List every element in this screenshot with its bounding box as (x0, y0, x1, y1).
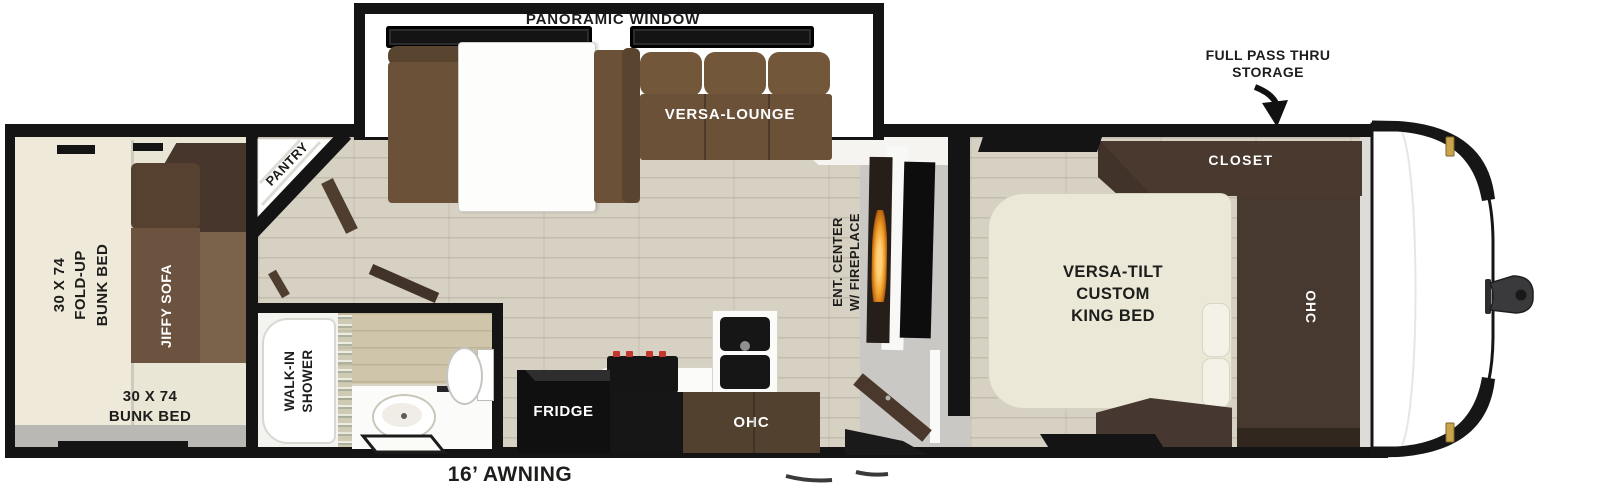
stove-knob-4 (659, 351, 666, 357)
toilet-bowl (446, 347, 483, 405)
jiffy-sofa-text: JIFFY SOFA (158, 264, 174, 348)
kitchen-ohc-cabinet: OHC (683, 392, 820, 453)
jiffy-sofa-label: JIFFY SOFA (157, 241, 175, 371)
king-bed-line-3: KING BED (1013, 306, 1213, 328)
hitch-mount (1485, 279, 1491, 314)
bunk-bed-line-2: BUNK BED (60, 407, 240, 427)
king-bed-line-2: CUSTOM (1013, 284, 1213, 306)
clearance-light-top-icon (1446, 137, 1454, 156)
storage-arrow-icon (1255, 87, 1277, 106)
bunk-bed-line-1: 30 X 74 (60, 387, 240, 407)
lounge-seam-2 (768, 94, 770, 160)
versa-lounge-label: VERSA-LOUNGE (630, 105, 830, 125)
shower-glass-door (338, 315, 352, 446)
bunk-bed-label: 30 X 74 BUNK BED (60, 387, 240, 428)
bedroom-doorway-floor (948, 416, 970, 447)
kitchen-ohc-label: OHC (733, 414, 769, 431)
kitchen-sink-bowl-bottom (720, 355, 770, 389)
walk-in-shower-label: WALK-IN SHOWER (281, 321, 317, 441)
walk-in-shower-line-2: SHOWER (299, 321, 317, 441)
versa-lounge-back-cushion-2 (704, 52, 766, 96)
storage-arrowhead-icon (1262, 100, 1288, 127)
bedroom-ohc-text: OHC (1303, 290, 1319, 324)
awning-label: 16’ AWNING (420, 461, 600, 488)
stove-knob-3 (646, 351, 653, 357)
bunk-window-top-right (133, 143, 163, 151)
under-counter-cabinet (598, 392, 683, 453)
exterior-step-marks (786, 472, 888, 481)
versa-lounge-back-cushion-1 (640, 52, 702, 96)
sink-basin (372, 394, 436, 440)
lounge-seam-1 (704, 94, 706, 160)
ent-center-line-1: ENT. CENTER (830, 187, 847, 337)
fold-up-bunk-line-1: 30 X 74 (49, 165, 70, 405)
hitch-coupler-icon (1490, 276, 1533, 313)
tv (900, 162, 936, 339)
ent-center-line-2: W/ FIREPLACE (847, 187, 864, 337)
entry-door-frame (930, 350, 940, 443)
fridge: FRIDGE (517, 370, 610, 453)
ohc-seam (753, 392, 755, 453)
jiffy-sofa-armrest (131, 163, 200, 229)
closet-label: CLOSET (1196, 151, 1286, 169)
closet-text: CLOSET (1208, 152, 1273, 168)
fold-up-bunk-label: 30 X 74 FOLD-UP BUNK BED (49, 165, 115, 405)
fridge-label: FRIDGE (533, 403, 593, 420)
panoramic-window-text: PANORAMIC WINDOW (526, 11, 700, 28)
fold-up-bunk-line-2: FOLD-UP (70, 165, 91, 405)
hitch-ball-socket-icon (1516, 290, 1527, 301)
pass-thru-line-1: FULL PASS THRU (1178, 47, 1358, 64)
front-cap-bottom-trim (1372, 377, 1495, 458)
bunk-window-bottom (58, 441, 188, 451)
jiffy-sofa-backrest (200, 232, 246, 363)
bed-pillow-bottom (1202, 358, 1230, 408)
versa-lounge-back-cushion-3 (768, 52, 830, 96)
king-bed-line-1: VERSA-TILT (1013, 262, 1213, 284)
versa-lounge-seat (640, 94, 832, 160)
fireplace (866, 157, 892, 343)
front-cap-seam (1402, 132, 1416, 446)
stove-knob-1 (613, 351, 620, 357)
dinette-bench-right-armrest (622, 48, 640, 203)
bunk-window-top-left (57, 145, 95, 154)
bedroom-window-top (978, 137, 1102, 152)
fireplace-flame-icon (871, 210, 888, 302)
fold-up-bunk-line-3: BUNK BED (92, 165, 113, 405)
kitchen-faucet-icon (740, 341, 750, 351)
stove-knob-2 (626, 351, 633, 357)
bedroom-window-bottom (1040, 434, 1165, 450)
sink-drain (401, 413, 407, 419)
dinette-table (458, 42, 596, 212)
floorplan-canvas: OHC FRIDGE (0, 0, 1600, 495)
bedroom-ohc-bottom-face (1237, 428, 1360, 447)
fridge-top-face (525, 370, 610, 381)
walk-in-shower-line-1: WALK-IN (281, 321, 299, 441)
ent-center-label: ENT. CENTER W/ FIREPLACE (830, 187, 864, 337)
pass-thru-line-2: STORAGE (1178, 64, 1358, 81)
versa-lounge-text: VERSA-LOUNGE (665, 106, 795, 123)
clearance-light-bottom-icon (1446, 423, 1454, 442)
panoramic-window-label: PANORAMIC WINDOW (463, 10, 763, 30)
front-cap-top-trim (1372, 121, 1495, 202)
stove (607, 356, 678, 393)
king-bed-label: VERSA-TILT CUSTOM KING BED (1013, 262, 1213, 327)
pass-thru-storage-label: FULL PASS THRU STORAGE (1178, 47, 1358, 81)
awning-text: 16’ AWNING (448, 463, 572, 486)
front-cap (1372, 124, 1493, 454)
bedroom-ohc-label: OHC (1304, 277, 1320, 337)
